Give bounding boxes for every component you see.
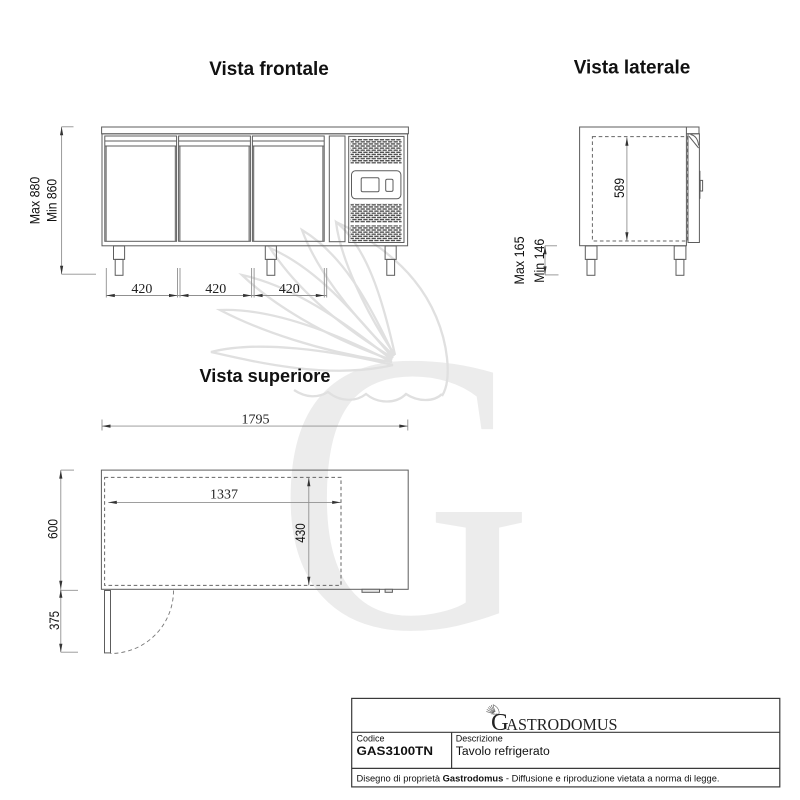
svg-text:Tavolo refrigerato: Tavolo refrigerato — [456, 746, 550, 758]
svg-text:420: 420 — [131, 282, 152, 297]
svg-text:420: 420 — [205, 282, 226, 297]
svg-text:Max 880: Max 880 — [28, 177, 43, 225]
svg-text:ASTRODOMUS: ASTRODOMUS — [506, 715, 617, 734]
svg-text:Vista frontale: Vista frontale — [209, 58, 329, 80]
svg-text:589: 589 — [612, 178, 627, 198]
svg-text:GAS3100TN: GAS3100TN — [357, 746, 434, 758]
svg-text:Vista laterale: Vista laterale — [574, 57, 691, 79]
svg-text:Disegno di proprietà Gastrodom: Disegno di proprietà Gastrodomus - Diffu… — [357, 773, 720, 783]
svg-text:Min 146: Min 146 — [532, 239, 547, 283]
svg-text:Codice: Codice — [357, 734, 385, 744]
svg-text:420: 420 — [279, 282, 300, 297]
svg-text:1795: 1795 — [242, 413, 270, 428]
svg-text:G: G — [276, 269, 533, 714]
svg-text:600: 600 — [45, 519, 60, 539]
svg-text:1337: 1337 — [210, 487, 238, 502]
svg-text:430: 430 — [293, 523, 308, 542]
svg-text:Max 165: Max 165 — [512, 236, 527, 284]
svg-text:375: 375 — [47, 611, 62, 630]
svg-text:Min 860: Min 860 — [45, 179, 60, 222]
svg-text:Descrizione: Descrizione — [456, 734, 503, 744]
svg-text:Vista superiore: Vista superiore — [200, 365, 331, 386]
